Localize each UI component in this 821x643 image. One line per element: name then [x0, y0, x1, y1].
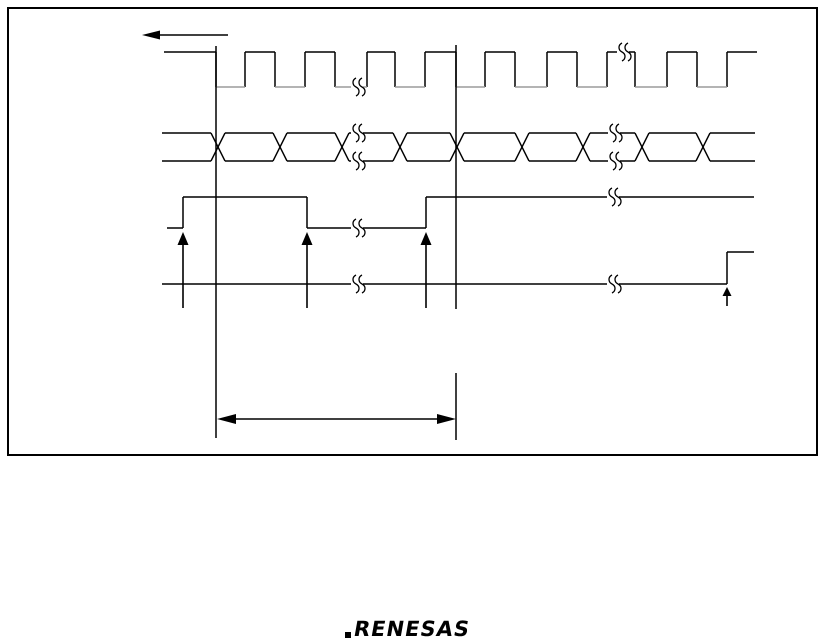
- edge-marker-arrow: [421, 232, 432, 308]
- edge-marker-arrow: [302, 232, 313, 308]
- renesas-logo-text: RENESAS: [352, 617, 472, 641]
- time-direction-arrow: [142, 31, 228, 40]
- renesas-logo-dot-icon: [345, 632, 351, 638]
- signal-output: [162, 252, 754, 293]
- edge-marker-arrow: [723, 287, 732, 306]
- timing-diagram-svg: [0, 0, 821, 643]
- signal-clock: [164, 43, 757, 96]
- signal-strobe: [167, 188, 754, 237]
- renesas-logo: RENESAS: [345, 613, 470, 641]
- signal-data-bus: [162, 124, 755, 170]
- page: RENESAS: [0, 0, 821, 643]
- edge-marker-arrow: [178, 232, 189, 308]
- diagram-border: [8, 8, 817, 455]
- measurement-arrow: [217, 414, 456, 424]
